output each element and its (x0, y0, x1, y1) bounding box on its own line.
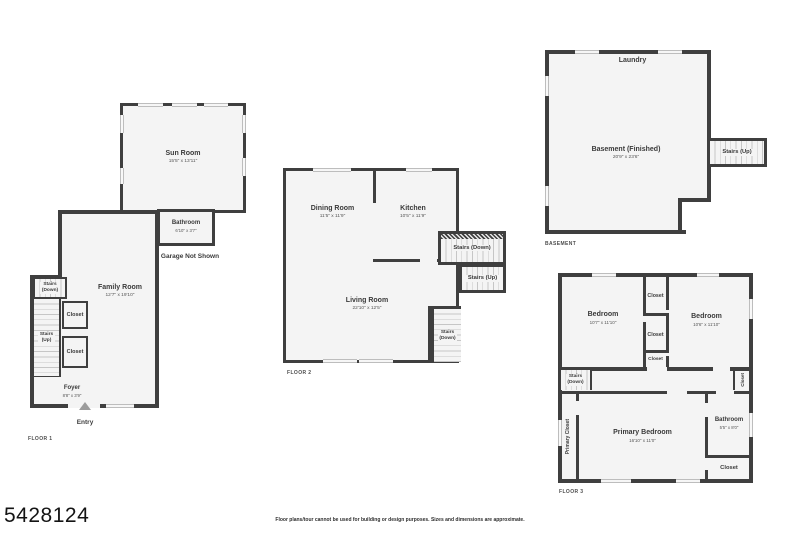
bathroom-f3-name: Bathroom (707, 417, 751, 425)
wall-segment (558, 479, 753, 483)
wall-segment (576, 394, 579, 401)
wall-segment (558, 391, 667, 394)
window-marker (749, 299, 753, 319)
bedroom-right-label: Bedroom 10'6" x 11'10" (669, 313, 744, 327)
floor-3-group: Stairs (Down) Closet Primary Closet Bedr… (0, 0, 800, 533)
wall-segment (734, 391, 753, 394)
wall-segment (667, 367, 713, 371)
closet-small-label: Closet (642, 357, 669, 363)
bathroom-f3-label: Bathroom 5'5" x 8'0" (707, 417, 751, 430)
window-marker (697, 273, 719, 277)
wall-segment (643, 313, 669, 316)
primary-closet-label: Primary Closet (565, 419, 571, 454)
window-marker (601, 479, 631, 483)
wall-segment (643, 350, 669, 353)
closet-top-label: Closet (642, 293, 669, 299)
wall-segment (687, 391, 716, 394)
window-marker (676, 479, 700, 483)
primary-bedroom-dims: 16'10" x 11'0" (595, 438, 690, 444)
bedroom-left-label: Bedroom 10'7" x 11'10" (563, 311, 643, 325)
floor-plan-page: Sun Room 15'5" x 13'11" Bathroom 6'10" x… (0, 0, 800, 533)
window-marker (592, 273, 616, 277)
hall-closet-f3: Closet (733, 369, 749, 390)
wall-segment (705, 455, 753, 458)
hall-closet-label: Closet (740, 373, 745, 387)
wall-segment (558, 273, 753, 277)
stairs-down-f3-label: Stairs (Down) (566, 374, 585, 386)
bedroom-left-dims: 10'7" x 11'10" (563, 320, 643, 326)
floor-3-tag: FLOOR 3 (559, 489, 583, 495)
primary-bedroom-name: Primary Bedroom (595, 429, 690, 438)
primary-bedroom-label: Primary Bedroom 16'10" x 11'0" (595, 429, 690, 443)
closet-bottom-label: Closet (707, 465, 751, 472)
stairs-down-f3: Stairs (Down) (561, 370, 592, 390)
closet-mid-label: Closet (642, 332, 669, 338)
bedroom-left-name: Bedroom (563, 311, 643, 320)
bedroom-right-dims: 10'6" x 11'10" (669, 322, 744, 328)
stairs-line: (Down) (567, 380, 583, 386)
listing-id: 5428124 (4, 504, 89, 528)
disclaimer-text: Floor plans/tour cannot be used for buil… (238, 517, 562, 523)
bathroom-f3-dims: 5'5" x 8'0" (707, 425, 751, 430)
primary-closet-f3: Primary Closet (559, 395, 576, 479)
wall-segment (576, 415, 579, 479)
bedroom-right-name: Bedroom (669, 313, 744, 322)
wall-segment (705, 394, 708, 403)
